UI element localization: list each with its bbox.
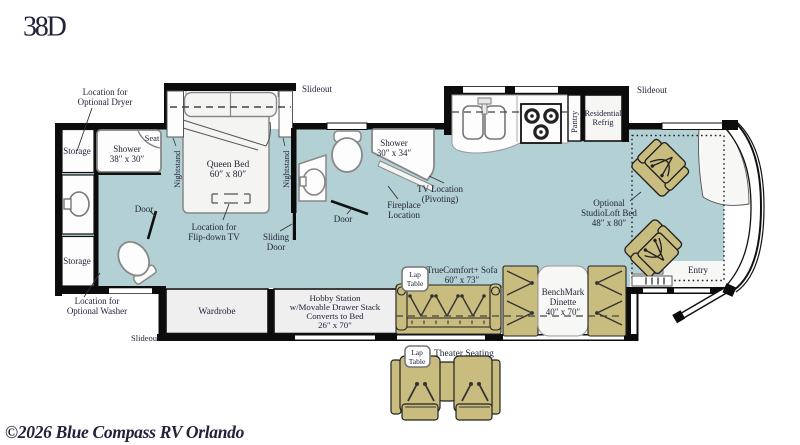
svg-text:TrueComfort+ Sofa: TrueComfort+ Sofa	[427, 265, 498, 275]
svg-text:Residential: Residential	[585, 109, 623, 118]
svg-text:Flip-down TV: Flip-down TV	[188, 232, 240, 242]
svg-text:Nightstand: Nightstand	[281, 150, 291, 188]
svg-text:Lap: Lap	[411, 348, 423, 357]
svg-text:Optional: Optional	[593, 198, 625, 208]
svg-text:26″ x 70″: 26″ x 70″	[318, 320, 352, 330]
svg-text:Location: Location	[388, 210, 420, 220]
svg-text:Table: Table	[409, 357, 426, 366]
svg-text:Shower: Shower	[380, 138, 408, 148]
svg-text:Slideout: Slideout	[302, 84, 333, 94]
svg-text:StudioLoft Bed: StudioLoft Bed	[581, 208, 637, 218]
svg-text:Refrig: Refrig	[593, 118, 614, 127]
svg-text:48″ x 80″: 48″ x 80″	[592, 218, 627, 228]
svg-text:Door: Door	[267, 242, 286, 252]
svg-text:Queen Bed: Queen Bed	[207, 160, 250, 170]
svg-text:(Pivoting): (Pivoting)	[422, 194, 459, 204]
svg-text:38″ x 30″: 38″ x 30″	[110, 154, 145, 164]
svg-text:Location for: Location for	[83, 87, 128, 97]
svg-text:Nightstand: Nightstand	[172, 150, 182, 188]
svg-text:Optional Washer: Optional Washer	[67, 306, 127, 316]
svg-text:Location for: Location for	[192, 222, 237, 232]
svg-text:Door: Door	[334, 214, 353, 224]
svg-text:Table: Table	[407, 279, 424, 288]
svg-text:©2026 Blue Compass RV Orlando: ©2026 Blue Compass RV Orlando	[5, 422, 245, 442]
svg-text:Wardrobe: Wardrobe	[198, 307, 235, 317]
svg-text:Shower: Shower	[113, 144, 141, 154]
svg-text:Slideout: Slideout	[637, 85, 668, 95]
svg-text:Entry: Entry	[688, 265, 708, 275]
svg-text:Slideout: Slideout	[131, 333, 160, 343]
svg-text:38D: 38D	[23, 12, 67, 43]
svg-text:Pantry: Pantry	[569, 110, 579, 133]
svg-text:Fireplace: Fireplace	[387, 200, 420, 210]
svg-text:Storage: Storage	[63, 256, 91, 266]
svg-text:BenchMark: BenchMark	[542, 287, 585, 297]
svg-text:Lap: Lap	[409, 270, 421, 279]
svg-text:Location for: Location for	[75, 296, 120, 306]
svg-text:Dinette: Dinette	[550, 297, 577, 307]
svg-text:Door: Door	[135, 204, 154, 214]
svg-text:60″ x 73″: 60″ x 73″	[445, 275, 480, 285]
svg-text:60″ x 80″: 60″ x 80″	[210, 170, 246, 180]
svg-text:30″ x 34″: 30″ x 34″	[377, 148, 412, 158]
svg-text:Sliding: Sliding	[263, 232, 290, 242]
svg-text:TV Location: TV Location	[417, 184, 464, 194]
svg-text:Seat: Seat	[145, 133, 160, 143]
svg-text:40″ x 70″: 40″ x 70″	[546, 307, 581, 317]
svg-text:Optional Dryer: Optional Dryer	[78, 97, 133, 107]
svg-text:Theater Seating: Theater Seating	[434, 349, 494, 359]
